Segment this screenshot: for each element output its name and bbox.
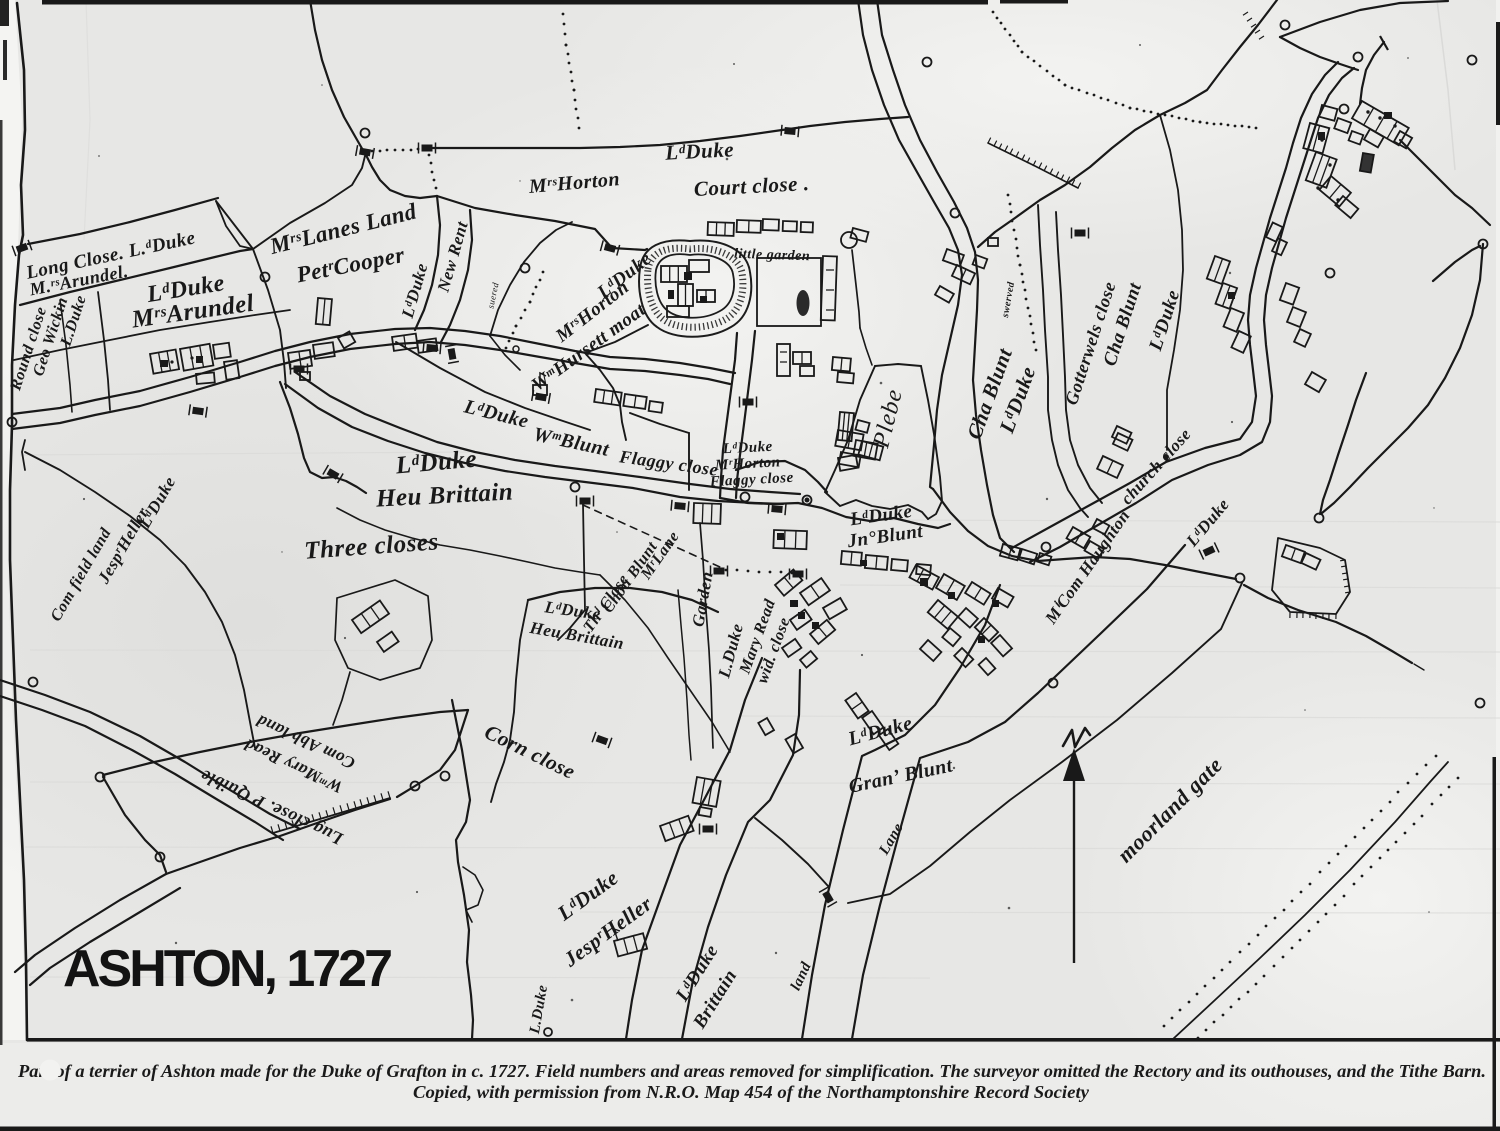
svg-text:ASHTON, 1727: ASHTON, 1727: [63, 940, 393, 998]
svg-text:little garden: little garden: [734, 247, 811, 265]
svg-text:Copied, with permission from N: Copied, with permission from N.R.O. Map …: [413, 1082, 1089, 1102]
svg-text:Part of a terrier of Ashton ma: Part of a terrier of Ashton made for the…: [17, 1061, 1486, 1081]
svg-text:LᵈDuke: LᵈDuke: [664, 137, 735, 165]
